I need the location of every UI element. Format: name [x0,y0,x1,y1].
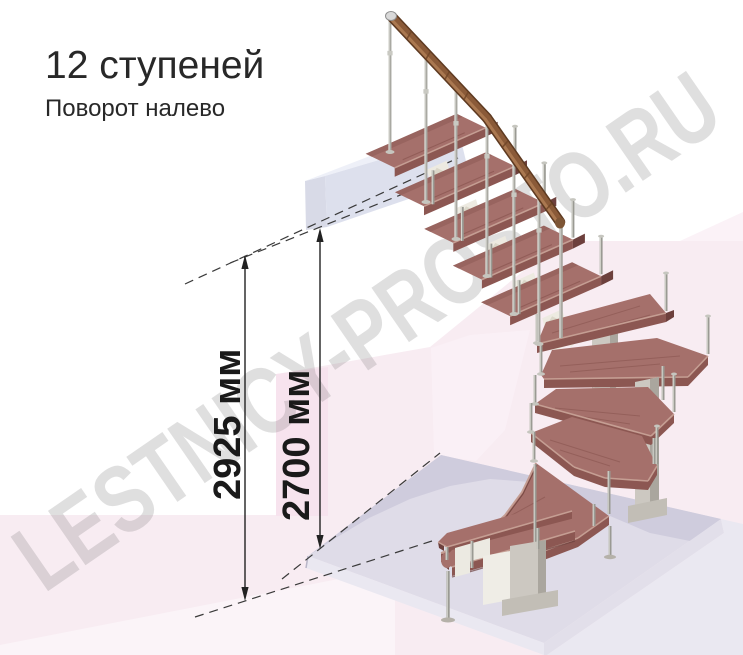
svg-text:12 ступеней: 12 ступеней [45,44,264,87]
svg-text:2700 мм: 2700 мм [276,370,318,521]
svg-text:Поворот налево: Поворот налево [45,95,225,122]
svg-text:2925 мм: 2925 мм [207,349,249,500]
